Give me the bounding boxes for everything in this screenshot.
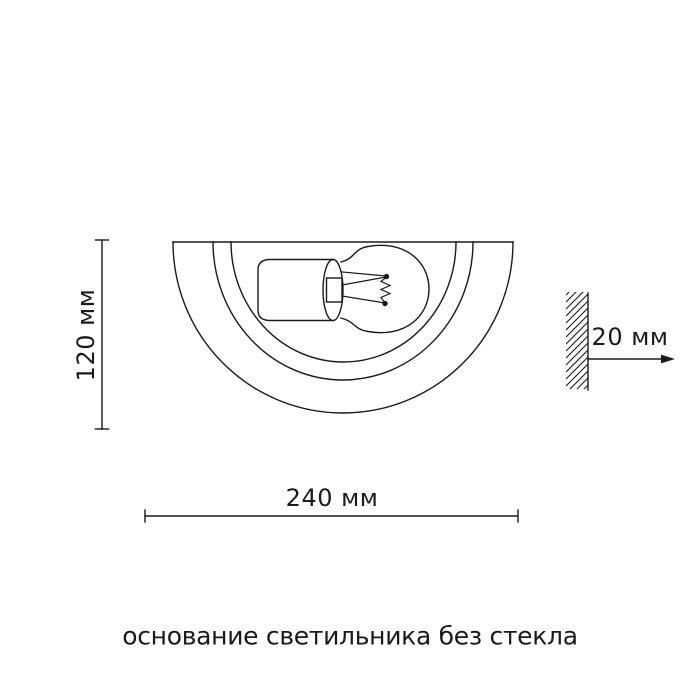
lamp-dimension-diagram: 120 мм 240 мм 20 мм основание светильник…: [0, 0, 700, 700]
light-bulb-icon: [341, 245, 429, 332]
filament-wire-top: [342, 272, 386, 276]
filament-node-top: [384, 274, 389, 279]
wall-hatching: [566, 292, 588, 389]
filament-wire-middle: [342, 277, 386, 285]
lamp-socket-contact: [327, 278, 343, 302]
diagram-caption: основание светильника без стекла: [122, 622, 578, 651]
filament-node-bottom: [382, 301, 387, 306]
filament-coil: [381, 277, 390, 303]
lamp-socket-body: [258, 260, 333, 321]
fixture-outer-arc: [173, 242, 513, 413]
height-dimension-label: 120 мм: [72, 289, 100, 382]
filament-wire-bottom: [342, 296, 385, 303]
depth-dimension-label: 20 мм: [592, 323, 669, 351]
width-dimension-label: 240 мм: [286, 484, 379, 512]
depth-arrow-head: [661, 355, 675, 364]
